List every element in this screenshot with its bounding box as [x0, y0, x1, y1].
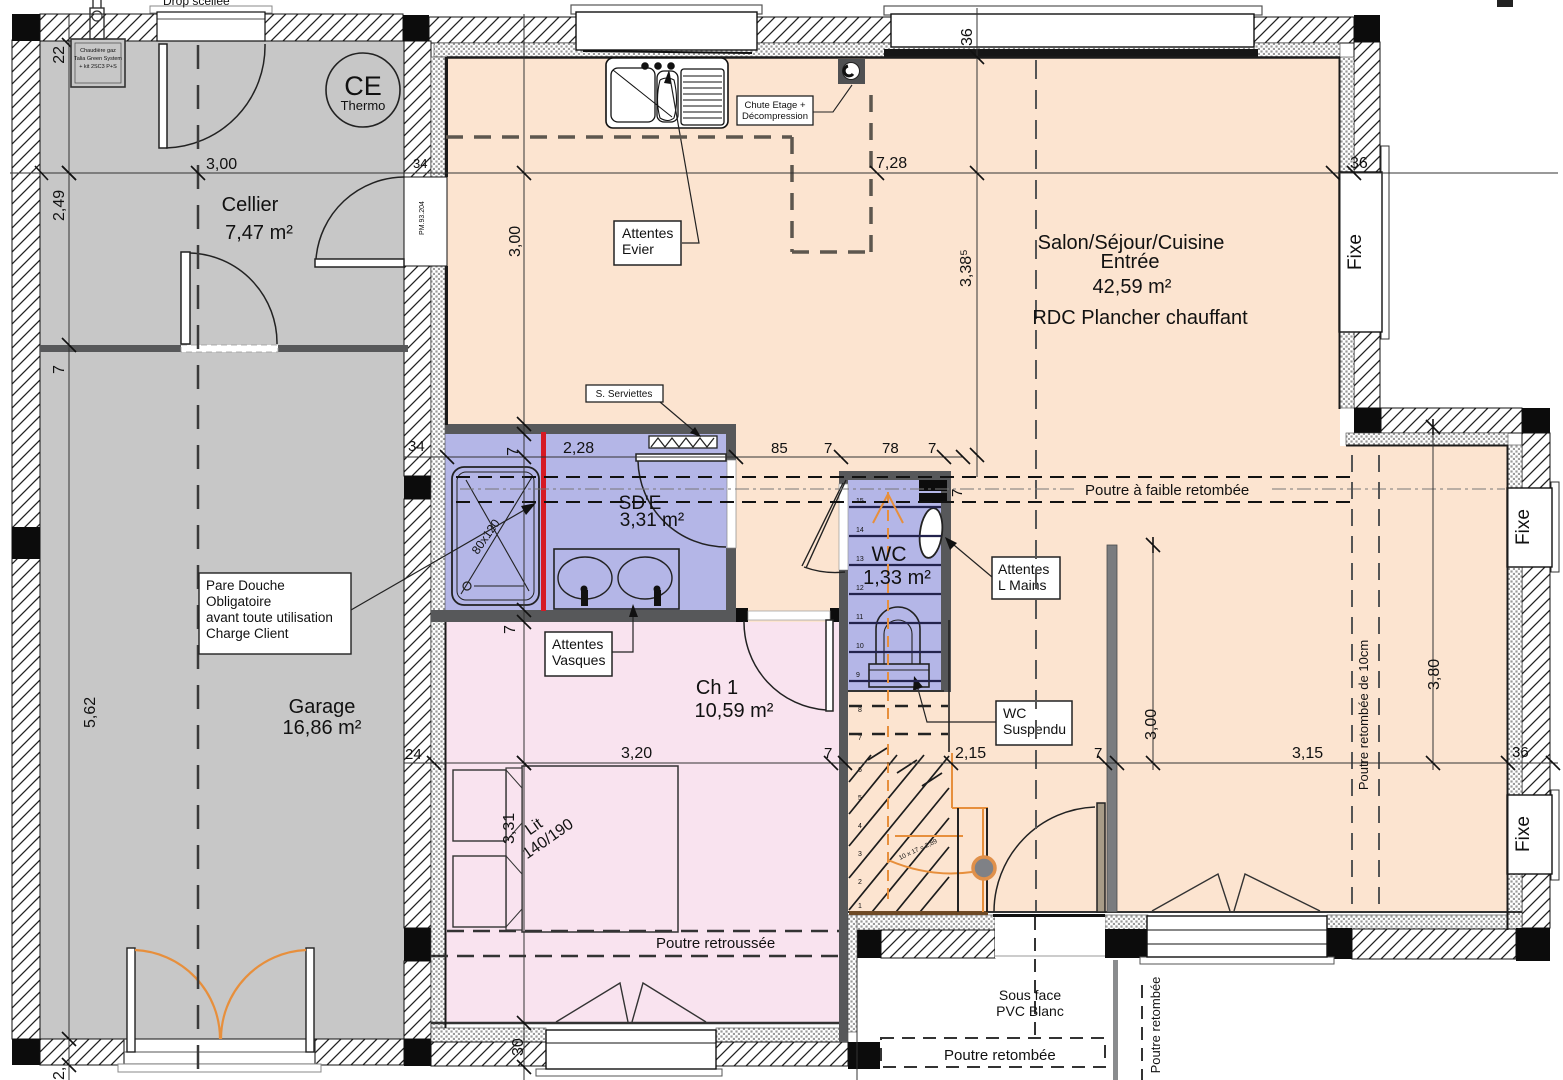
svg-text:13: 13 [856, 556, 864, 563]
svg-text:7: 7 [505, 447, 522, 456]
svg-text:1: 1 [858, 903, 862, 910]
svg-text:3,31: 3,31 [501, 813, 518, 844]
svg-text:Evier: Evier [622, 241, 654, 257]
svg-text:RDC Plancher chauffant: RDC Plancher chauffant [1032, 307, 1248, 329]
svg-text:4: 4 [858, 823, 862, 830]
svg-text:5: 5 [858, 795, 862, 802]
svg-text:42,59 m²: 42,59 m² [1093, 276, 1172, 298]
svg-text:3,15: 3,15 [1292, 745, 1323, 762]
svg-text:3,31 m²: 3,31 m² [620, 510, 684, 531]
svg-text:Obligatoire: Obligatoire [206, 594, 271, 609]
svg-text:7: 7 [51, 365, 68, 374]
svg-text:Pare Douche: Pare Douche [206, 578, 285, 593]
svg-text:10,59 m²: 10,59 m² [695, 700, 774, 722]
svg-text:Sous face: Sous face [999, 987, 1061, 1003]
svg-text:3: 3 [858, 851, 862, 858]
svg-text:WC: WC [1003, 705, 1026, 721]
svg-text:7: 7 [824, 440, 832, 457]
svg-text:22: 22 [51, 46, 68, 64]
svg-text:+ kit 2SC3 P+S: + kit 2SC3 P+S [79, 64, 117, 70]
svg-text:Fixe: Fixe [1513, 816, 1534, 852]
svg-text:Poutre retombée: Poutre retombée [1148, 977, 1163, 1074]
svg-text:Charge Client: Charge Client [206, 626, 289, 641]
svg-text:Thermo: Thermo [341, 98, 386, 113]
svg-text:WC: WC [872, 543, 907, 566]
svg-text:Vasques: Vasques [552, 652, 605, 668]
svg-text:9: 9 [856, 672, 860, 679]
svg-text:Ch 1: Ch 1 [696, 677, 738, 699]
svg-text:PM.93.204: PM.93.204 [419, 201, 426, 235]
svg-text:24: 24 [405, 746, 422, 763]
svg-text:11: 11 [856, 614, 863, 621]
svg-text:Poutre à faible retombée: Poutre à faible retombée [1085, 482, 1249, 499]
svg-text:3,00: 3,00 [206, 156, 237, 173]
svg-text:Chute Etage +: Chute Etage + [744, 100, 805, 111]
svg-text:8: 8 [858, 707, 862, 714]
svg-text:2,28: 2,28 [563, 440, 594, 457]
svg-text:36: 36 [1512, 744, 1529, 761]
svg-text:7: 7 [502, 625, 519, 634]
svg-text:Attentes: Attentes [622, 225, 673, 241]
svg-text:avant toute utilisation: avant toute utilisation [206, 610, 333, 625]
svg-text:Fixe: Fixe [1345, 234, 1366, 270]
svg-text:5,62: 5,62 [82, 697, 99, 728]
svg-text:Poutre retroussée: Poutre retroussée [656, 935, 775, 952]
svg-text:85: 85 [771, 440, 788, 457]
svg-text:7,28: 7,28 [876, 155, 907, 172]
svg-text:Garage: Garage [289, 696, 356, 718]
svg-text:2,15: 2,15 [955, 745, 986, 762]
svg-text:2,: 2, [51, 1067, 68, 1080]
svg-text:7,47 m²: 7,47 m² [225, 222, 293, 244]
svg-text:10: 10 [856, 643, 864, 650]
svg-text:7: 7 [928, 440, 936, 457]
svg-text:7: 7 [1094, 745, 1102, 762]
svg-text:CE: CE [344, 71, 382, 101]
svg-text:78: 78 [882, 440, 899, 457]
svg-text:6: 6 [858, 767, 862, 774]
svg-text:PVC Blanc: PVC Blanc [996, 1003, 1064, 1019]
svg-text:30: 30 [510, 1038, 527, 1056]
svg-text:36: 36 [959, 28, 976, 46]
svg-text:Décompression: Décompression [742, 111, 808, 122]
svg-text:36: 36 [1350, 155, 1368, 172]
svg-text:3,00: 3,00 [507, 226, 524, 257]
svg-text:2,49: 2,49 [51, 190, 68, 221]
svg-text:Poutre retombée de 10cm: Poutre retombée de 10cm [1356, 640, 1371, 790]
svg-text:Talia Green System: Talia Green System [74, 56, 122, 62]
svg-text:Chaudière gaz: Chaudière gaz [80, 48, 116, 54]
svg-text:7: 7 [824, 745, 832, 762]
svg-text:Attentes: Attentes [998, 561, 1049, 577]
svg-text:3,38⁵: 3,38⁵ [958, 249, 975, 287]
svg-text:Attentes: Attentes [552, 636, 603, 652]
svg-text:16,86 m²: 16,86 m² [283, 717, 362, 739]
svg-text:34: 34 [413, 156, 427, 171]
svg-text:2: 2 [858, 879, 862, 886]
svg-text:Cellier: Cellier [222, 194, 279, 216]
svg-text:34: 34 [408, 438, 425, 455]
svg-text:S. Serviettes: S. Serviettes [596, 389, 653, 400]
svg-text:Drop scellée: Drop scellée [163, 0, 230, 8]
svg-text:Fixe: Fixe [1513, 509, 1534, 545]
svg-text:1,33 m²: 1,33 m² [863, 567, 931, 589]
svg-text:3,80: 3,80 [1426, 659, 1443, 690]
svg-text:7: 7 [858, 735, 862, 742]
svg-text:L Mains: L Mains [998, 577, 1047, 593]
svg-text:Entrée: Entrée [1101, 251, 1160, 273]
svg-text:Poutre retombée: Poutre retombée [944, 1047, 1056, 1064]
svg-text:3,20: 3,20 [621, 745, 652, 762]
svg-text:3,00: 3,00 [1143, 709, 1160, 740]
svg-text:Suspendu: Suspendu [1003, 721, 1066, 737]
svg-text:7: 7 [949, 489, 966, 497]
svg-text:14: 14 [856, 527, 864, 534]
